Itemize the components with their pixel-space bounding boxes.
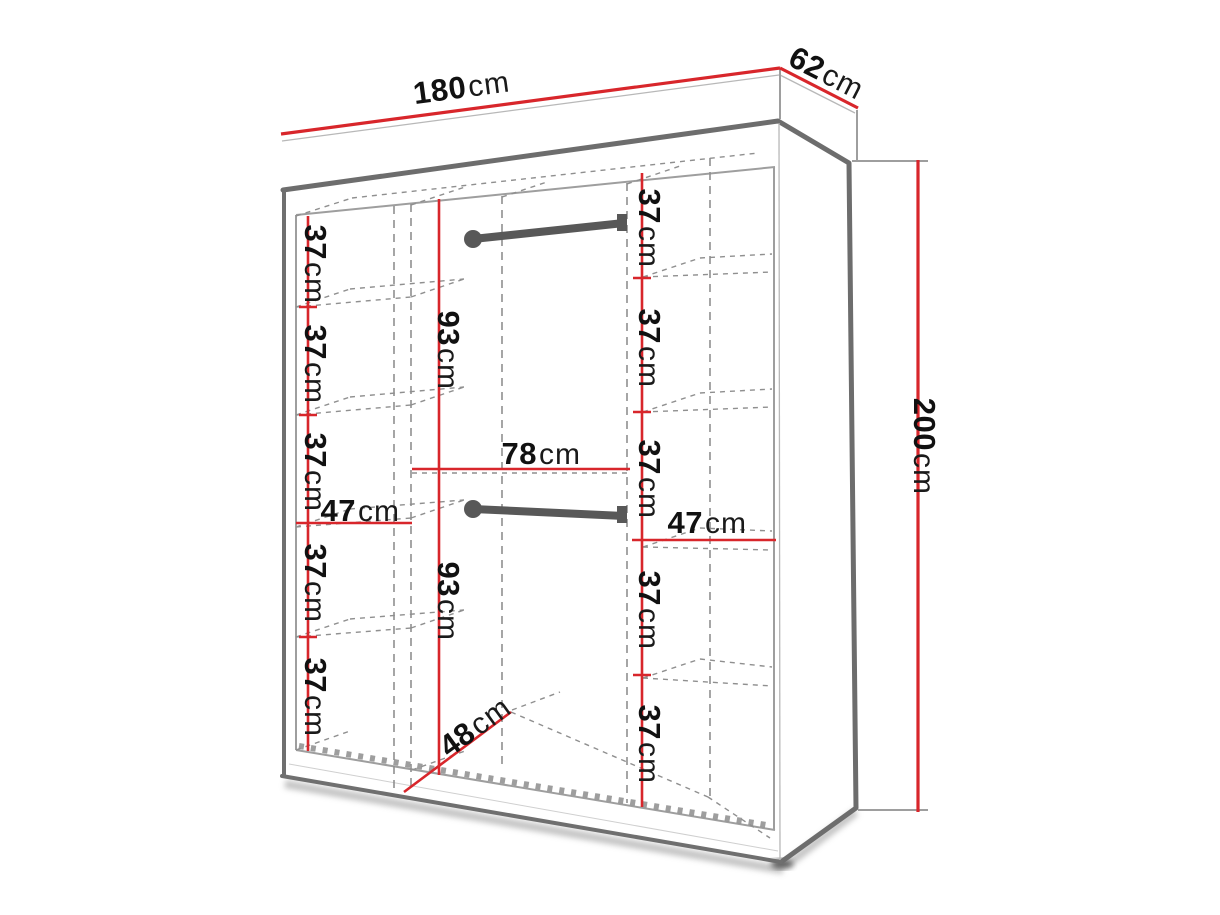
- wardrobe-dimension-diagram: 180 cm 62 cm 200 cm 37 cm 37 cm 37 cm 37…: [0, 0, 1220, 915]
- svg-text:47: 47: [668, 505, 703, 540]
- svg-text:cm: cm: [298, 362, 331, 404]
- svg-text:180: 180: [411, 69, 468, 111]
- svg-text:cm: cm: [298, 581, 331, 623]
- svg-text:37: 37: [632, 309, 667, 344]
- dim-right-compartment-3-label: 37 cm: [632, 571, 667, 650]
- diagram-canvas: 180 cm 62 cm 200 cm 37 cm 37 cm 37 cm 37…: [0, 0, 1220, 915]
- svg-text:cm: cm: [632, 477, 665, 519]
- svg-text:37: 37: [632, 440, 667, 475]
- svg-text:37: 37: [298, 658, 333, 693]
- rod-end-cap: [464, 500, 482, 518]
- side-face: [778, 121, 856, 862]
- dim-height-label: 200 cm: [907, 398, 942, 495]
- rod-bracket: [617, 214, 627, 231]
- dim-left-compartment-0-label: 37 cm: [298, 225, 333, 304]
- dim-right-compartment-2-label: 37 cm: [632, 440, 667, 519]
- svg-text:200: 200: [907, 398, 942, 451]
- svg-text:93: 93: [431, 562, 466, 597]
- svg-text:37: 37: [298, 433, 333, 468]
- dim-hanging-bottom-label: 93 cm: [431, 562, 466, 641]
- dim-hanging-top-label: 93 cm: [431, 311, 466, 390]
- dim-left-compartment-1-label: 37 cm: [298, 325, 333, 404]
- dim-right-compartment-4-label: 37 cm: [632, 705, 667, 784]
- svg-text:37: 37: [632, 189, 667, 224]
- svg-text:cm: cm: [298, 262, 331, 304]
- svg-text:37: 37: [632, 571, 667, 606]
- dim-mid-width-label: 78 cm: [502, 436, 581, 471]
- dim-right-compartment-0-label: 37 cm: [632, 189, 667, 268]
- svg-text:37: 37: [298, 544, 333, 579]
- dim-left-compartment-4-label: 37 cm: [298, 658, 333, 737]
- dim-left-width-label: 47 cm: [321, 493, 400, 528]
- svg-text:cm: cm: [632, 742, 665, 784]
- dim-left-compartment-3-label: 37 cm: [298, 544, 333, 623]
- svg-text:cm: cm: [907, 453, 940, 495]
- svg-text:cm: cm: [466, 65, 512, 103]
- svg-text:cm: cm: [358, 495, 400, 528]
- svg-text:37: 37: [632, 705, 667, 740]
- svg-text:37: 37: [298, 225, 333, 260]
- svg-text:cm: cm: [632, 226, 665, 268]
- svg-text:cm: cm: [431, 599, 464, 641]
- svg-text:47: 47: [321, 493, 356, 528]
- rod-bracket: [617, 506, 627, 523]
- svg-text:93: 93: [431, 311, 466, 346]
- rod-end-cap: [464, 230, 482, 248]
- dim-right-width-label: 47 cm: [668, 505, 747, 540]
- svg-text:cm: cm: [632, 608, 665, 650]
- svg-text:cm: cm: [632, 346, 665, 388]
- svg-text:cm: cm: [705, 507, 747, 540]
- dim-right-compartment-1-label: 37 cm: [632, 309, 667, 388]
- svg-text:cm: cm: [298, 695, 331, 737]
- svg-text:cm: cm: [539, 438, 581, 471]
- svg-text:78: 78: [502, 436, 537, 471]
- svg-text:cm: cm: [431, 348, 464, 390]
- svg-text:37: 37: [298, 325, 333, 360]
